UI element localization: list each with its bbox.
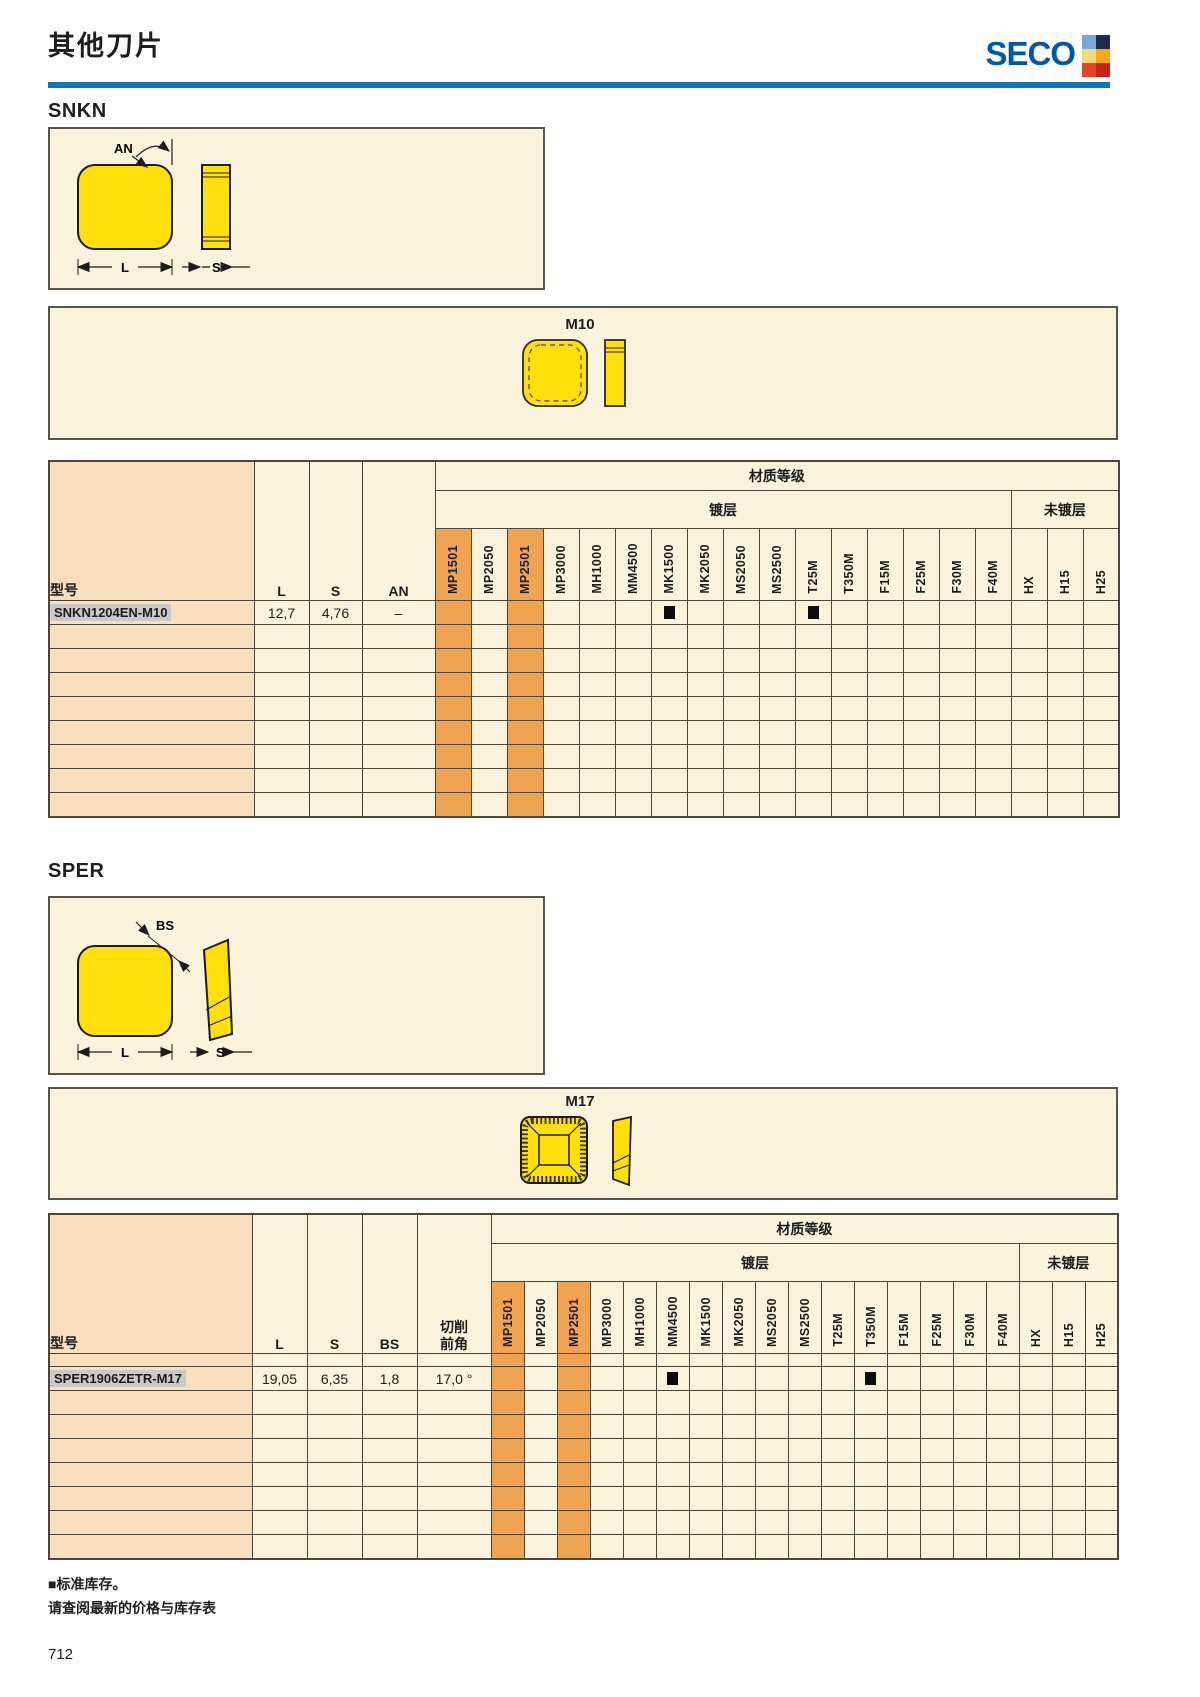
grade-cell-MK1500	[651, 793, 687, 817]
grade-cell-MP2050	[471, 625, 507, 649]
grade-cell-T350M	[854, 1367, 887, 1391]
dim-cell-1	[307, 1354, 362, 1367]
snkn-thickness-label: S	[212, 260, 221, 275]
grade-cell-T25M	[821, 1535, 854, 1559]
grade-cell-F15M	[867, 697, 903, 721]
grade-cell-MS2500	[759, 673, 795, 697]
grade-cell-T25M	[795, 745, 831, 769]
table-row	[49, 697, 1119, 721]
grade-cell-MM4500	[615, 793, 651, 817]
grade-col-label: H15	[1062, 1319, 1076, 1350]
grade-col-F30M: F30M	[953, 1282, 986, 1354]
logo-square-pale-yellow	[1082, 49, 1096, 63]
grade-col-label: MP1501	[446, 541, 460, 597]
grade-cell-MK1500	[689, 1535, 722, 1559]
grade-cell-MP2501	[557, 1354, 590, 1367]
grade-cell-T25M	[795, 793, 831, 817]
grade-cell-T25M	[821, 1439, 854, 1463]
grade-cell-MK1500	[651, 673, 687, 697]
grade-cell-MH1000	[579, 793, 615, 817]
grade-cell-MP3000	[543, 673, 579, 697]
grade-cell-MS2500	[788, 1487, 821, 1511]
table-row	[49, 721, 1119, 745]
grade-cell-F30M	[953, 1415, 986, 1439]
grade-cell-F15M	[887, 1354, 920, 1367]
grade-col-label: MP2501	[567, 1294, 581, 1350]
grade-col-MS2050: MS2050	[723, 529, 759, 601]
grade-cell-H15	[1052, 1511, 1085, 1535]
grade-cell-MK1500	[651, 601, 687, 625]
grade-cell-MS2500	[788, 1415, 821, 1439]
dim-cell-1: 4,76	[309, 601, 362, 625]
grade-cell-MP2501	[507, 769, 543, 793]
grade-cell-T25M	[821, 1391, 854, 1415]
snkn-length-label: L	[121, 260, 129, 275]
grade-cell-H15	[1047, 721, 1083, 745]
grade-cell-MK2050	[687, 697, 723, 721]
grade-cell-HX	[1019, 1354, 1052, 1367]
grade-cell-MM4500	[656, 1511, 689, 1535]
grade-cell-HX	[1011, 625, 1047, 649]
col-header-model: 型号	[49, 461, 254, 601]
grade-cell-H25	[1085, 1439, 1118, 1463]
grade-cell-MS2500	[788, 1535, 821, 1559]
grade-cell-H25	[1083, 769, 1119, 793]
grade-cell-MP3000	[543, 697, 579, 721]
logo-square-amber	[1096, 49, 1110, 63]
grade-cell-MM4500	[615, 721, 651, 745]
grade-cell-F40M	[986, 1511, 1019, 1535]
grade-cell-F30M	[953, 1535, 986, 1559]
grade-cell-MK2050	[722, 1463, 755, 1487]
grade-cell-F40M	[986, 1535, 1019, 1559]
grade-cell-H15	[1047, 649, 1083, 673]
table-row: SPER1906ZETR-M1719,056,351,817,0 °	[49, 1367, 1118, 1391]
grade-cell-T25M	[821, 1463, 854, 1487]
grade-cell-H25	[1083, 745, 1119, 769]
grade-cell-MK2050	[687, 745, 723, 769]
model-cell	[49, 673, 254, 697]
dim-cell-3	[417, 1487, 491, 1511]
grade-col-MM4500: MM4500	[615, 529, 651, 601]
grade-cell-MP2050	[524, 1367, 557, 1391]
grade-col-label: F30M	[950, 556, 964, 597]
table-row	[49, 1463, 1118, 1487]
grade-cell-T350M	[854, 1487, 887, 1511]
grade-cell-H15	[1052, 1487, 1085, 1511]
grade-cell-MS2050	[723, 793, 759, 817]
table-row	[49, 625, 1119, 649]
stock-marker	[865, 1372, 876, 1385]
grade-cell-HX	[1019, 1439, 1052, 1463]
grade-col-MK1500: MK1500	[689, 1282, 722, 1354]
grade-cell-MP1501	[491, 1535, 524, 1559]
grade-cell-MM4500	[656, 1535, 689, 1559]
grade-cell-MP2501	[557, 1511, 590, 1535]
grade-cell-MP1501	[491, 1367, 524, 1391]
grade-cell-MH1000	[579, 625, 615, 649]
grade-col-label: T350M	[864, 1302, 878, 1350]
dim-cell-2	[362, 649, 435, 673]
m10-insert-drawing	[505, 336, 655, 418]
grade-col-label: MP3000	[554, 541, 568, 597]
dim-cell-1	[307, 1487, 362, 1511]
grade-cell-MP3000	[543, 745, 579, 769]
grade-cell-F15M	[887, 1463, 920, 1487]
grade-cell-MS2050	[755, 1354, 788, 1367]
grade-cell-H25	[1083, 697, 1119, 721]
stock-legend-note: ■标准库存。	[48, 1574, 126, 1594]
table-row	[49, 1439, 1118, 1463]
grade-cell-MS2050	[723, 649, 759, 673]
grade-cell-MP3000	[590, 1367, 623, 1391]
dim-cell-0	[252, 1487, 307, 1511]
grade-cell-F25M	[903, 649, 939, 673]
grade-cell-HX	[1019, 1415, 1052, 1439]
table-row	[49, 1535, 1118, 1559]
sper-grades-table: 型号LSBS切削 前角材质等级镀层未镀层MP1501MP2050MP2501MP…	[48, 1213, 1119, 1560]
dim-cell-2	[362, 1511, 417, 1535]
grade-col-MS2050: MS2050	[755, 1282, 788, 1354]
grade-col-label: F15M	[878, 556, 892, 597]
dim-cell-2: –	[362, 601, 435, 625]
grade-cell-F15M	[867, 793, 903, 817]
grade-col-label: F25M	[930, 1309, 944, 1350]
col-header-dim-3: 切削 前角	[417, 1214, 491, 1354]
dim-cell-0	[254, 745, 309, 769]
model-cell	[49, 745, 254, 769]
grade-cell-MK1500	[689, 1439, 722, 1463]
grade-cell-MK2050	[687, 793, 723, 817]
dim-cell-1	[309, 697, 362, 721]
seco-logo-text: SECO	[985, 34, 1075, 74]
grade-cell-MS2500	[759, 745, 795, 769]
dim-cell-2: 1,8	[362, 1367, 417, 1391]
grade-cell-MP2501	[557, 1439, 590, 1463]
grade-cell-T25M	[795, 625, 831, 649]
grade-cell-F25M	[920, 1439, 953, 1463]
grade-cell-F25M	[920, 1354, 953, 1367]
grade-cell-MP2050	[471, 601, 507, 625]
grade-cell-MP2050	[471, 649, 507, 673]
header-rule	[48, 82, 1110, 88]
page-number: 712	[48, 1646, 73, 1663]
grade-col-label: HX	[1029, 1325, 1043, 1350]
grade-cell-MK1500	[689, 1463, 722, 1487]
grade-cell-MK1500	[651, 745, 687, 769]
dim-cell-2	[362, 769, 435, 793]
grade-cell-MP2050	[524, 1354, 557, 1367]
grade-cell-F15M	[887, 1535, 920, 1559]
grade-cell-MH1000	[623, 1511, 656, 1535]
grade-cell-F30M	[939, 769, 975, 793]
grade-cell-F25M	[920, 1463, 953, 1487]
grade-cell-MK2050	[722, 1367, 755, 1391]
grade-cell-MP2501	[507, 649, 543, 673]
grade-cell-F15M	[867, 625, 903, 649]
grade-cell-MK2050	[722, 1354, 755, 1367]
dim-cell-3	[417, 1439, 491, 1463]
grade-cell-MM4500	[615, 769, 651, 793]
grade-cell-F40M	[975, 697, 1011, 721]
grade-cell-MP2501	[557, 1367, 590, 1391]
grade-col-label: T350M	[842, 549, 856, 597]
dim-cell-1	[309, 649, 362, 673]
grade-cell-MK1500	[651, 697, 687, 721]
grade-cell-T350M	[831, 745, 867, 769]
table-row	[49, 673, 1119, 697]
dim-cell-0: 12,7	[254, 601, 309, 625]
grade-cell-F40M	[986, 1463, 1019, 1487]
grade-cell-H15	[1047, 769, 1083, 793]
grade-cell-F30M	[953, 1439, 986, 1463]
grade-col-label: MH1000	[590, 540, 604, 597]
grade-cell-H15	[1047, 697, 1083, 721]
grade-cell-F15M	[887, 1511, 920, 1535]
grade-cell-F40M	[975, 793, 1011, 817]
grade-cell-MP2050	[471, 745, 507, 769]
grade-cell-F15M	[887, 1439, 920, 1463]
logo-square-red	[1082, 63, 1096, 77]
grade-cell-F25M	[920, 1487, 953, 1511]
grade-cell-MS2050	[755, 1439, 788, 1463]
grade-cell-T25M	[821, 1415, 854, 1439]
grade-cell-MS2500	[759, 625, 795, 649]
grade-col-label: T25M	[831, 1309, 845, 1350]
grade-cell-MP2501	[507, 793, 543, 817]
grade-cell-MP1501	[435, 649, 471, 673]
grade-cell-MS2050	[723, 769, 759, 793]
grade-col-F40M: F40M	[986, 1282, 1019, 1354]
grade-cell-F40M	[975, 649, 1011, 673]
grade-cell-F25M	[920, 1535, 953, 1559]
grade-cell-MS2050	[723, 721, 759, 745]
dim-cell-0	[254, 697, 309, 721]
grade-col-label: F40M	[986, 556, 1000, 597]
grade-cell-F40M	[986, 1367, 1019, 1391]
grade-cell-T350M	[854, 1511, 887, 1535]
grade-cell-H25	[1085, 1391, 1118, 1415]
page-title: 其他刀片	[48, 24, 164, 63]
grade-cell-MS2050	[755, 1415, 788, 1439]
grade-cell-T350M	[831, 721, 867, 745]
grade-cell-HX	[1019, 1535, 1052, 1559]
grade-cell-HX	[1019, 1391, 1052, 1415]
grade-cell-HX	[1011, 601, 1047, 625]
grade-cell-MP1501	[435, 793, 471, 817]
grade-cell-MK2050	[687, 649, 723, 673]
grade-cell-MS2050	[723, 745, 759, 769]
table-row	[49, 1487, 1118, 1511]
grade-col-label: MP3000	[600, 1294, 614, 1350]
dim-cell-3	[417, 1511, 491, 1535]
grade-cell-MP1501	[435, 769, 471, 793]
dim-cell-1	[307, 1415, 362, 1439]
grade-cell-H25	[1085, 1487, 1118, 1511]
grade-cell-F15M	[867, 649, 903, 673]
grade-cell-F40M	[975, 673, 1011, 697]
grade-cell-F25M	[903, 697, 939, 721]
grade-col-MP2050: MP2050	[471, 529, 507, 601]
grade-col-label: MM4500	[626, 539, 640, 597]
grade-cell-MK2050	[687, 721, 723, 745]
coated-header: 镀层	[491, 1244, 1019, 1282]
grade-cell-F15M	[867, 601, 903, 625]
grade-cell-H25	[1085, 1354, 1118, 1367]
grade-cell-MM4500	[615, 673, 651, 697]
grade-cell-T25M	[795, 697, 831, 721]
dim-cell-2	[362, 1415, 417, 1439]
grade-cell-MP2501	[557, 1487, 590, 1511]
model-cell	[49, 769, 254, 793]
m17-insert-drawing	[505, 1113, 655, 1193]
grade-cell-H25	[1085, 1535, 1118, 1559]
grade-cell-MP2501	[557, 1535, 590, 1559]
grade-cell-MP3000	[543, 649, 579, 673]
grade-cell-T25M	[821, 1354, 854, 1367]
grade-cell-MP3000	[590, 1415, 623, 1439]
dim-cell-0	[252, 1511, 307, 1535]
grade-cell-H25	[1085, 1511, 1118, 1535]
grade-cell-F30M	[953, 1463, 986, 1487]
grade-col-MP2050: MP2050	[524, 1282, 557, 1354]
grade-cell-F15M	[887, 1367, 920, 1391]
grade-cell-MM4500	[615, 625, 651, 649]
grade-cell-F40M	[975, 601, 1011, 625]
grade-cell-F25M	[903, 673, 939, 697]
grade-cell-T350M	[831, 673, 867, 697]
grade-cell-MH1000	[579, 721, 615, 745]
grade-cell-MM4500	[656, 1463, 689, 1487]
grade-cell-MS2500	[788, 1391, 821, 1415]
grade-cell-F15M	[887, 1415, 920, 1439]
grade-cell-H15	[1047, 673, 1083, 697]
grade-cell-H25	[1083, 793, 1119, 817]
grade-cell-F40M	[986, 1354, 1019, 1367]
grade-cell-T25M	[821, 1511, 854, 1535]
grade-cell-HX	[1011, 649, 1047, 673]
grade-cell-MH1000	[579, 697, 615, 721]
grade-col-label: H25	[1094, 1319, 1108, 1350]
grade-cell-F30M	[939, 745, 975, 769]
dim-cell-2	[362, 697, 435, 721]
grade-col-H25: H25	[1085, 1282, 1118, 1354]
grade-col-label: F25M	[914, 556, 928, 597]
grade-cell-F15M	[867, 721, 903, 745]
dim-cell-2	[362, 1487, 417, 1511]
grade-cell-MP2501	[557, 1415, 590, 1439]
grade-cell-MS2050	[723, 673, 759, 697]
col-header-dim-2: AN	[362, 461, 435, 601]
dim-cell-2	[362, 1535, 417, 1559]
grade-cell-HX	[1011, 721, 1047, 745]
stock-marker	[667, 1372, 678, 1385]
dim-cell-3	[417, 1415, 491, 1439]
grade-cell-MP3000	[543, 721, 579, 745]
dim-cell-0	[252, 1415, 307, 1439]
col-header-model: 型号	[49, 1214, 252, 1354]
grade-col-MH1000: MH1000	[623, 1282, 656, 1354]
grade-cell-MM4500	[615, 745, 651, 769]
grade-cell-MP1501	[491, 1439, 524, 1463]
grade-cell-H15	[1052, 1391, 1085, 1415]
grade-cell-H15	[1052, 1354, 1085, 1367]
chipbreaker-name-m17: M17	[505, 1093, 655, 1110]
seco-logo: SECO	[985, 34, 1110, 77]
model-cell	[49, 1511, 252, 1535]
model-cell	[49, 1463, 252, 1487]
grade-cell-F25M	[920, 1367, 953, 1391]
dim-cell-2	[362, 745, 435, 769]
grade-cell-H15	[1047, 745, 1083, 769]
grade-cell-T350M	[831, 769, 867, 793]
grade-cell-MS2500	[759, 769, 795, 793]
grade-cell-H25	[1085, 1415, 1118, 1439]
grade-cell-MP1501	[491, 1391, 524, 1415]
sper-thickness-label: S	[216, 1045, 225, 1060]
grade-cell-F30M	[939, 649, 975, 673]
grade-cell-F30M	[939, 625, 975, 649]
dim-cell-2	[362, 1463, 417, 1487]
grade-col-label: MS2500	[770, 541, 784, 597]
grade-cell-MM4500	[656, 1391, 689, 1415]
grade-col-MS2500: MS2500	[759, 529, 795, 601]
grade-col-label: MK2050	[732, 1293, 746, 1350]
grade-cell-MM4500	[656, 1415, 689, 1439]
grade-cell-F30M	[939, 697, 975, 721]
dim-cell-0	[254, 769, 309, 793]
grade-cell-MP2050	[524, 1415, 557, 1439]
grade-col-MS2500: MS2500	[788, 1282, 821, 1354]
grade-cell-MS2500	[759, 721, 795, 745]
grade-cell-T25M	[795, 721, 831, 745]
table-row	[49, 1415, 1118, 1439]
stock-marker	[664, 606, 675, 619]
grade-col-label: MK1500	[662, 540, 676, 597]
grade-cell-MP2501	[507, 625, 543, 649]
dim-cell-1	[309, 625, 362, 649]
grade-cell-MM4500	[656, 1354, 689, 1367]
grade-col-label: HX	[1022, 572, 1036, 597]
grade-col-H25: H25	[1083, 529, 1119, 601]
grade-cell-T25M	[795, 649, 831, 673]
grade-cell-MP2501	[507, 673, 543, 697]
grade-cell-MS2050	[723, 625, 759, 649]
grade-cell-F25M	[903, 793, 939, 817]
grade-cell-H25	[1083, 625, 1119, 649]
grade-col-F25M: F25M	[920, 1282, 953, 1354]
dim-cell-1	[307, 1439, 362, 1463]
grade-cell-HX	[1019, 1487, 1052, 1511]
grades-table: 型号LSAN材质等级镀层未镀层MP1501MP2050MP2501MP3000M…	[48, 460, 1120, 818]
grade-cell-MH1000	[579, 649, 615, 673]
grade-cell-MP2050	[471, 769, 507, 793]
grade-cell-H15	[1047, 601, 1083, 625]
grade-col-H15: H15	[1052, 1282, 1085, 1354]
grade-cell-HX	[1011, 673, 1047, 697]
grade-cell-MP3000	[590, 1487, 623, 1511]
grade-cell-F25M	[903, 721, 939, 745]
dim-cell-0	[254, 721, 309, 745]
grade-col-label: MK1500	[699, 1293, 713, 1350]
grade-cell-MP3000	[543, 625, 579, 649]
grade-col-MP3000: MP3000	[543, 529, 579, 601]
grade-cell-MK1500	[651, 721, 687, 745]
model-cell	[49, 1439, 252, 1463]
model-cell	[49, 1535, 252, 1559]
model-cell	[49, 649, 254, 673]
dim-cell-1	[307, 1463, 362, 1487]
